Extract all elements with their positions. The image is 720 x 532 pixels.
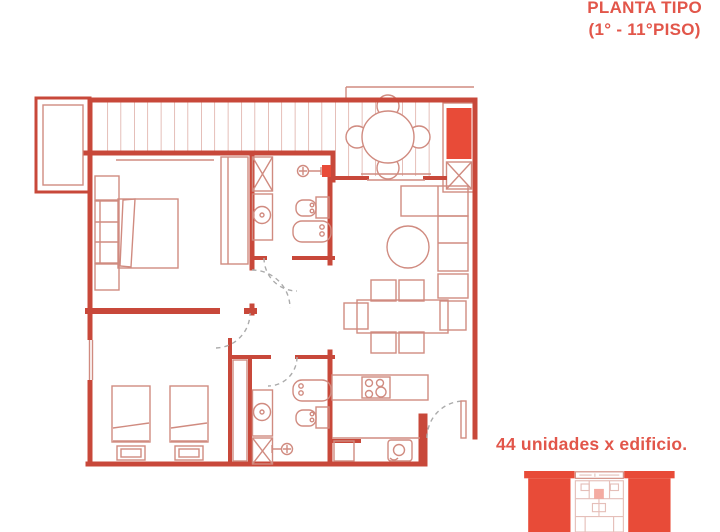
toilet-icon [296, 197, 329, 218]
key-plan-right-tower [624, 471, 674, 478]
shaft-grille [447, 162, 472, 189]
kitchen [332, 375, 428, 461]
bathtub-icon [293, 221, 331, 242]
door-swing [252, 270, 290, 308]
stove-icon [362, 377, 390, 398]
washer-icon [388, 440, 412, 461]
key-plan-left-tower [524, 471, 574, 478]
master-bedroom [95, 157, 248, 290]
shower-icon [298, 165, 332, 177]
single-bed-1 [112, 386, 150, 460]
page-title: PLANTA TIPO (1° - 11°PISO) [587, 0, 702, 41]
bathtub-icon [293, 380, 331, 401]
sink-icon [253, 390, 273, 436]
door-swing [268, 357, 297, 386]
key-plan-center-units [575, 472, 623, 532]
title-line-2: (1° - 11°PISO) [587, 19, 702, 41]
cabinet [334, 441, 354, 461]
duct [233, 360, 247, 461]
living-room [344, 186, 468, 353]
sink-icon [253, 194, 273, 240]
shaft-grille [253, 157, 273, 191]
bedroom-2 [112, 386, 208, 460]
side-balcony [36, 98, 90, 192]
window [87, 340, 93, 380]
bathroom-2 [233, 360, 331, 464]
single-bed-2 [170, 386, 208, 460]
door-swing [427, 401, 464, 438]
rug [387, 226, 429, 268]
shower-icon [272, 444, 293, 455]
wardrobe [221, 157, 248, 264]
sofa [401, 186, 468, 298]
shaft-grille [253, 438, 273, 464]
shelf [95, 201, 119, 263]
nightstand [95, 264, 119, 290]
side-table [438, 274, 468, 298]
units-caption: 44 unidades x edificio. [496, 434, 687, 455]
bathroom-1 [253, 157, 332, 242]
key-plan [505, 471, 710, 532]
title-line-1: PLANTA TIPO [587, 0, 702, 19]
nightstand [95, 176, 119, 200]
door-swing [216, 313, 250, 348]
dining-table [344, 280, 466, 353]
entrance-door [461, 401, 466, 438]
toilet-icon [296, 407, 329, 428]
double-bed [118, 199, 178, 268]
